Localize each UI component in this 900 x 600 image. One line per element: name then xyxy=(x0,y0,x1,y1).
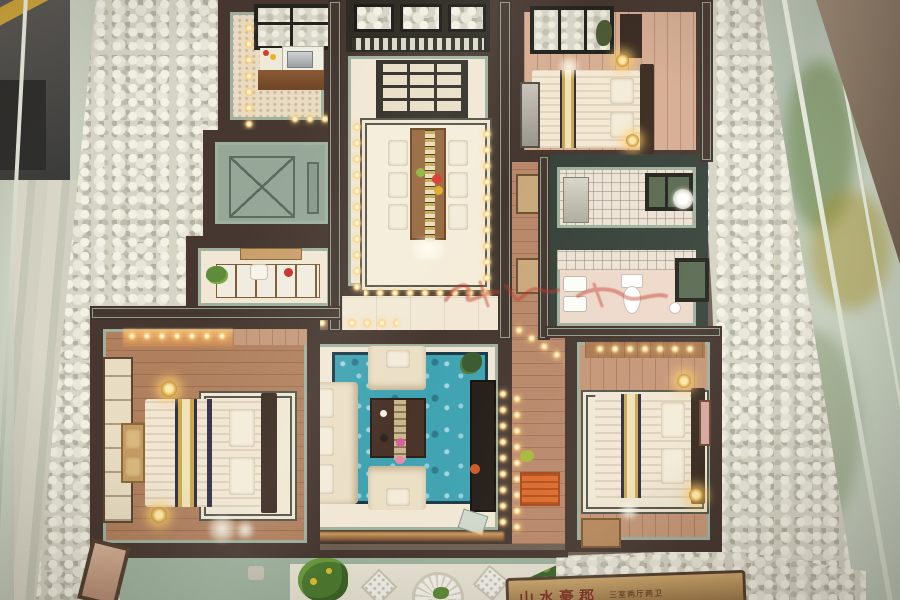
balcony-top xyxy=(336,0,500,56)
bed-pillow xyxy=(229,457,255,495)
coffee-table xyxy=(370,398,426,458)
kitchen-cabinet xyxy=(258,70,324,90)
bed-runner xyxy=(560,70,576,148)
dining-table xyxy=(410,128,446,240)
flower-planter xyxy=(448,4,486,32)
photo-watermark xyxy=(428,262,678,322)
bedside-lamp xyxy=(677,374,691,388)
plaque-title: 山水豪郡 xyxy=(519,584,600,600)
bed-pillow xyxy=(661,402,685,438)
living-room xyxy=(296,330,512,544)
display-case-scene: 山水豪郡 三室两厅两卫 xyxy=(0,0,900,600)
dining-chair xyxy=(388,172,408,198)
ceiling-led xyxy=(589,344,701,354)
armchair-cushion xyxy=(386,488,410,506)
bedside-lamp xyxy=(626,134,639,147)
dining-chair xyxy=(388,204,408,230)
flower-planter xyxy=(354,4,394,32)
fruit-yellow xyxy=(270,54,276,60)
elevator-shaft-panel xyxy=(229,156,295,218)
bedside-lamp xyxy=(616,54,629,67)
plaque-spec: 三室两厅两卫 xyxy=(609,587,663,600)
bed-pillow xyxy=(661,448,685,484)
window-mullion xyxy=(665,177,668,207)
coffee-table-runner xyxy=(394,400,406,460)
balcony-railing xyxy=(350,36,486,52)
elevator-lobby xyxy=(203,130,340,236)
bench-cushion xyxy=(125,457,141,477)
glass-reflection-dark xyxy=(0,80,46,170)
entry-wall-art xyxy=(240,248,302,260)
bed xyxy=(145,399,261,507)
bed-foot-bench xyxy=(121,423,145,483)
floor-led-string xyxy=(512,388,522,538)
floor-led-string xyxy=(498,388,508,528)
wardrobe-led xyxy=(125,331,229,341)
interior-wall xyxy=(328,0,342,332)
kitchen-sink xyxy=(287,51,313,68)
kitchen-led-strip xyxy=(288,114,332,124)
table-runner xyxy=(425,130,435,242)
dining-chair xyxy=(448,204,468,230)
flower-red xyxy=(284,268,293,277)
bokeh-highlight xyxy=(558,56,580,78)
bathroom-upper xyxy=(545,155,708,240)
bed-stripe xyxy=(207,399,212,507)
dining-bench-highlight xyxy=(406,238,450,260)
table-flowers xyxy=(434,186,443,195)
bedroom-cabinet xyxy=(620,14,642,58)
interior-wall xyxy=(90,306,342,320)
wardrobe-mirror xyxy=(520,82,540,148)
patio-pot xyxy=(248,566,264,580)
bokeh-highlight xyxy=(207,515,237,543)
orange-bench xyxy=(520,472,560,506)
bokeh-highlight xyxy=(235,521,255,539)
balcony-door-glow xyxy=(308,532,504,541)
entry-plant xyxy=(206,266,226,282)
decor-pot xyxy=(470,464,480,474)
bed-headboard xyxy=(261,393,277,513)
window-mullion xyxy=(290,8,293,46)
planter-flower xyxy=(326,568,332,574)
window-mullion xyxy=(258,22,330,25)
bench-cushion xyxy=(125,429,141,449)
planter-flower xyxy=(310,578,317,585)
ceiling-wood-band xyxy=(233,329,307,345)
bed-pillow xyxy=(229,409,255,447)
table-flower xyxy=(395,456,405,464)
table-flower xyxy=(396,438,405,447)
bedroom-bottom-right xyxy=(565,330,722,552)
table-flowers xyxy=(432,174,442,184)
teapot xyxy=(380,434,388,442)
elevator-door-slot xyxy=(307,162,319,214)
armchair xyxy=(368,466,426,510)
dining-chair xyxy=(448,172,468,198)
dining-chair xyxy=(448,140,468,166)
dining-chair xyxy=(388,140,408,166)
tv-console xyxy=(470,380,496,512)
kitchen-led-strip xyxy=(244,22,254,130)
bokeh-highlight xyxy=(619,502,639,520)
bed-runner xyxy=(175,399,197,507)
flower-planter xyxy=(400,4,442,32)
hallway-lower xyxy=(512,338,565,544)
kitchen-counter xyxy=(282,46,324,72)
kitchen-window xyxy=(254,4,334,50)
bathroom-window xyxy=(675,258,709,302)
table-fruit xyxy=(416,168,425,177)
kitchen-room xyxy=(218,0,336,132)
bed-pillow xyxy=(610,78,634,104)
window-mullion xyxy=(558,10,561,50)
door-mat xyxy=(516,174,540,214)
planter-left xyxy=(298,558,348,600)
wall-art xyxy=(699,400,711,446)
handbag xyxy=(250,264,268,280)
bedside-lamp xyxy=(689,488,703,502)
garden-balcony xyxy=(120,550,568,600)
bedroom-plant xyxy=(596,20,612,46)
bedside-lamp xyxy=(151,507,167,523)
lattice-screen xyxy=(376,60,468,118)
master-bedroom xyxy=(90,316,320,556)
ceiling-fan-lamp xyxy=(673,189,693,209)
bedroom-dresser xyxy=(581,518,621,548)
bedroom-top-right xyxy=(512,0,708,162)
fruit-red xyxy=(263,50,269,56)
window-mullion xyxy=(584,10,587,50)
bed-runner xyxy=(621,394,641,498)
floor-led-string xyxy=(352,122,362,292)
tea-cup xyxy=(380,410,387,417)
interior-wall xyxy=(545,326,722,338)
bed-headboard xyxy=(640,64,654,154)
kitchen-counter xyxy=(260,48,282,70)
vanity-mirror xyxy=(563,177,589,223)
bedside-lamp xyxy=(161,381,177,397)
living-plant xyxy=(462,352,482,372)
exterior-wall xyxy=(700,0,713,162)
bed xyxy=(532,70,640,148)
bed xyxy=(595,394,691,498)
armchair-cushion xyxy=(386,350,410,368)
hall-plant xyxy=(520,450,534,462)
armchair xyxy=(368,346,426,390)
entry-console-table xyxy=(216,264,320,298)
table-plant xyxy=(433,587,449,599)
